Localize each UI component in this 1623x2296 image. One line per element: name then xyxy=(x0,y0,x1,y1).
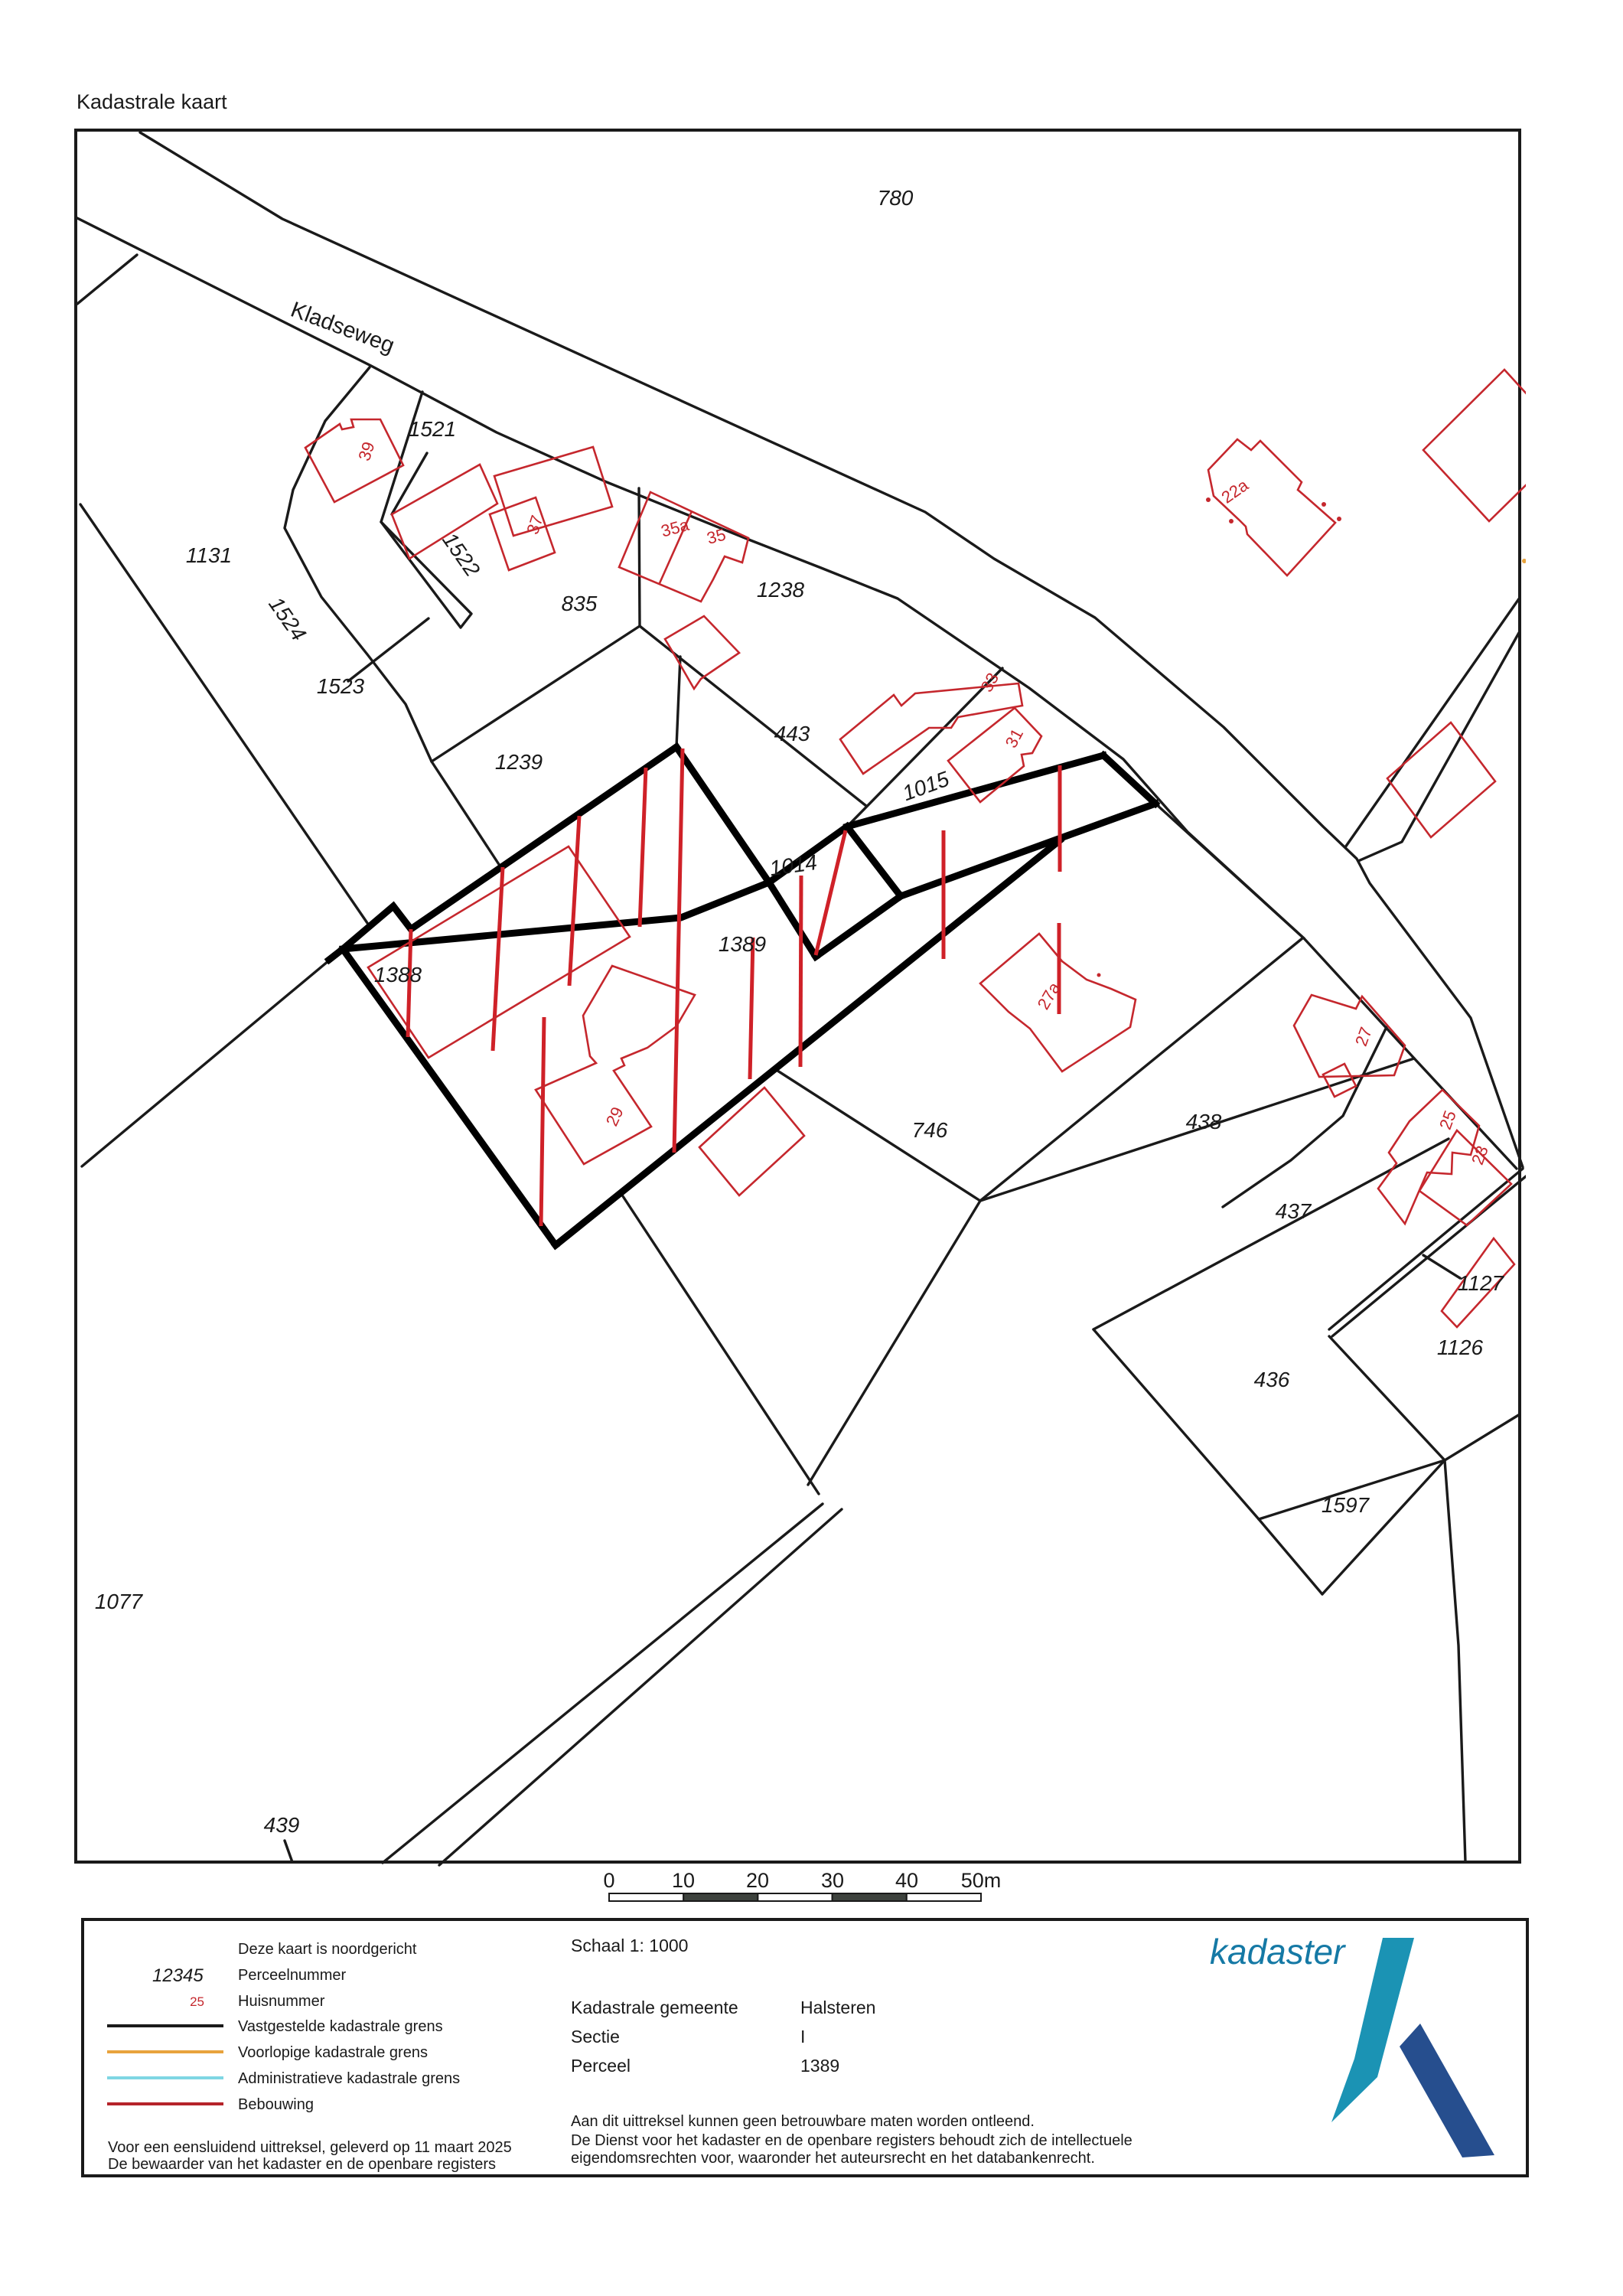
svg-text:436: 436 xyxy=(1254,1368,1290,1391)
svg-text:kadaster: kadaster xyxy=(1210,1932,1346,1971)
svg-text:1238: 1238 xyxy=(757,578,805,602)
svg-text:Bebouwing: Bebouwing xyxy=(238,2096,314,2113)
svg-text:1127: 1127 xyxy=(1458,1271,1505,1295)
svg-text:780: 780 xyxy=(878,186,914,210)
svg-text:835: 835 xyxy=(562,592,598,615)
svg-text:1389: 1389 xyxy=(719,932,766,956)
svg-text:Sectie: Sectie xyxy=(571,2027,620,2047)
svg-text:40: 40 xyxy=(895,1869,918,1892)
svg-text:Perceelnummer: Perceelnummer xyxy=(238,1967,347,1984)
svg-text:1239: 1239 xyxy=(495,750,543,774)
svg-text:443: 443 xyxy=(774,722,810,745)
svg-text:1131: 1131 xyxy=(186,543,232,567)
svg-text:12345: 12345 xyxy=(152,1965,204,1986)
svg-text:1523: 1523 xyxy=(317,674,365,698)
svg-text:0: 0 xyxy=(603,1869,614,1892)
svg-text:1597: 1597 xyxy=(1322,1493,1370,1517)
svg-text:1077: 1077 xyxy=(95,1590,144,1613)
svg-text:I: I xyxy=(800,2027,805,2047)
svg-text:30: 30 xyxy=(821,1869,844,1892)
svg-text:Deze kaart is noordgericht: Deze kaart is noordgericht xyxy=(238,1941,417,1958)
svg-text:1388: 1388 xyxy=(374,963,422,987)
svg-text:De bewaarder van het kadaster: De bewaarder van het kadaster en de open… xyxy=(108,2156,496,2173)
svg-text:Perceel: Perceel xyxy=(571,2056,631,2076)
svg-text:439: 439 xyxy=(264,1813,300,1837)
svg-text:25: 25 xyxy=(190,1994,204,2009)
svg-text:Huisnummer: Huisnummer xyxy=(238,1993,325,2010)
svg-text:50m: 50m xyxy=(961,1869,1002,1892)
svg-text:Schaal 1: 1000: Schaal 1: 1000 xyxy=(571,1936,688,1955)
svg-text:Aan dit uittreksel kunnen geen: Aan dit uittreksel kunnen geen betrouwba… xyxy=(571,2113,1035,2130)
svg-text:1521: 1521 xyxy=(409,417,456,441)
svg-text:Administratieve kadastrale gre: Administratieve kadastrale grens xyxy=(238,2070,460,2087)
svg-text:Kadastrale kaart: Kadastrale kaart xyxy=(77,90,227,113)
svg-text:Kadastrale gemeente: Kadastrale gemeente xyxy=(571,1998,738,2017)
svg-text:1389: 1389 xyxy=(800,2056,839,2076)
svg-text:Vastgestelde kadastrale grens: Vastgestelde kadastrale grens xyxy=(238,2018,443,2035)
svg-text:De Dienst voor het kadaster en: De Dienst voor het kadaster en de openba… xyxy=(571,2132,1133,2149)
svg-text:eigendomsrechten voor, waarond: eigendomsrechten voor, waaronder het aut… xyxy=(571,2150,1095,2167)
svg-text:20: 20 xyxy=(746,1869,769,1892)
svg-text:Halsteren: Halsteren xyxy=(800,1998,875,2017)
svg-text:746: 746 xyxy=(912,1118,948,1142)
svg-text:Voorlopige kadastrale grens: Voorlopige kadastrale grens xyxy=(238,2044,428,2061)
svg-text:437: 437 xyxy=(1276,1199,1312,1223)
svg-text:1126: 1126 xyxy=(1437,1336,1484,1359)
svg-text:Voor een eensluidend uittrekse: Voor een eensluidend uittreksel, gelever… xyxy=(108,2139,512,2156)
svg-text:10: 10 xyxy=(672,1869,695,1892)
svg-text:438: 438 xyxy=(1186,1110,1222,1133)
